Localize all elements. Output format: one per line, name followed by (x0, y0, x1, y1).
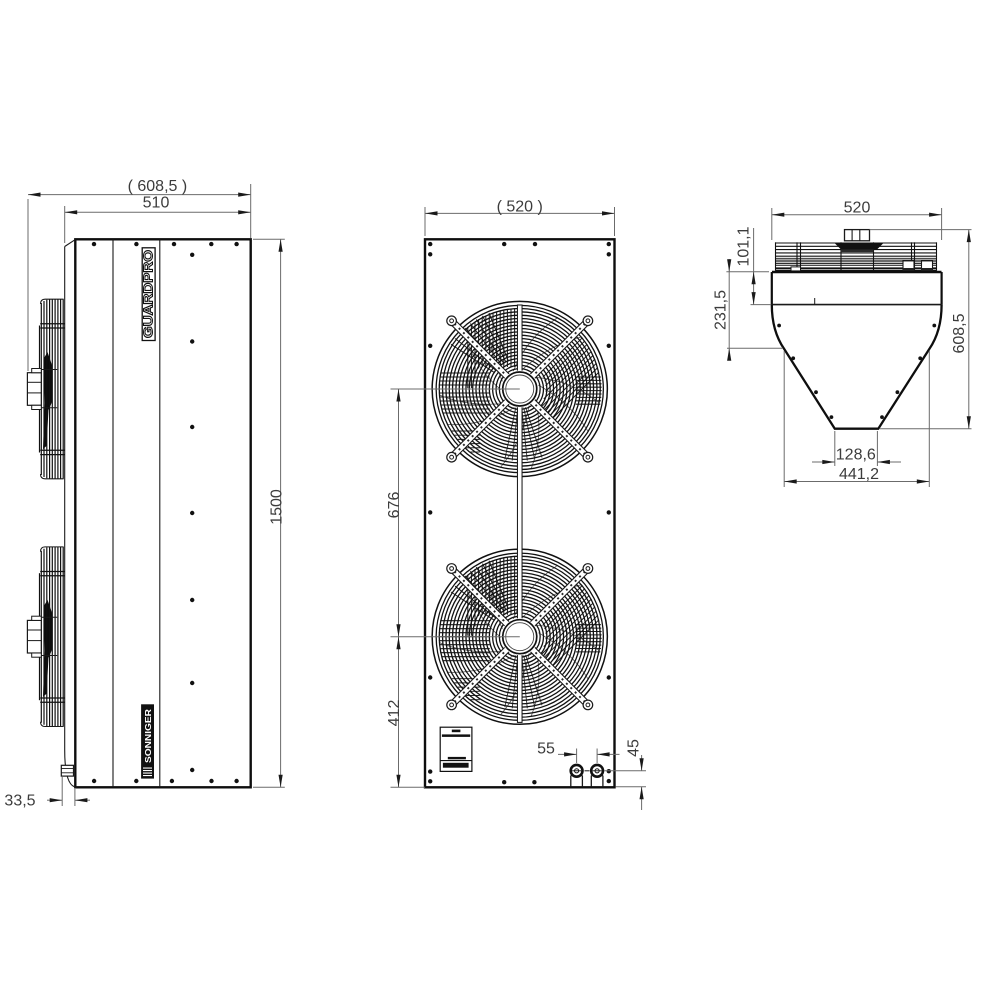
svg-text:( 608,5 ): ( 608,5 ) (128, 178, 188, 195)
svg-text:45: 45 (626, 739, 643, 757)
svg-text:( 520 ): ( 520 ) (497, 199, 543, 216)
svg-text:GUARDPRO: GUARDPRO (141, 250, 155, 338)
svg-text:608,5: 608,5 (951, 313, 968, 353)
svg-text:510: 510 (143, 194, 170, 211)
svg-text:128,6: 128,6 (836, 447, 876, 464)
svg-text:676: 676 (386, 492, 403, 519)
svg-text:441,2: 441,2 (839, 466, 879, 483)
svg-text:SONNIGER: SONNIGER (143, 709, 153, 763)
svg-text:55: 55 (537, 740, 555, 757)
svg-text:520: 520 (844, 200, 871, 217)
svg-text:33,5: 33,5 (4, 792, 35, 809)
svg-text:1500: 1500 (268, 489, 285, 525)
svg-text:231,5: 231,5 (713, 290, 730, 330)
svg-text:101,1: 101,1 (735, 226, 752, 266)
svg-text:412: 412 (386, 700, 403, 727)
